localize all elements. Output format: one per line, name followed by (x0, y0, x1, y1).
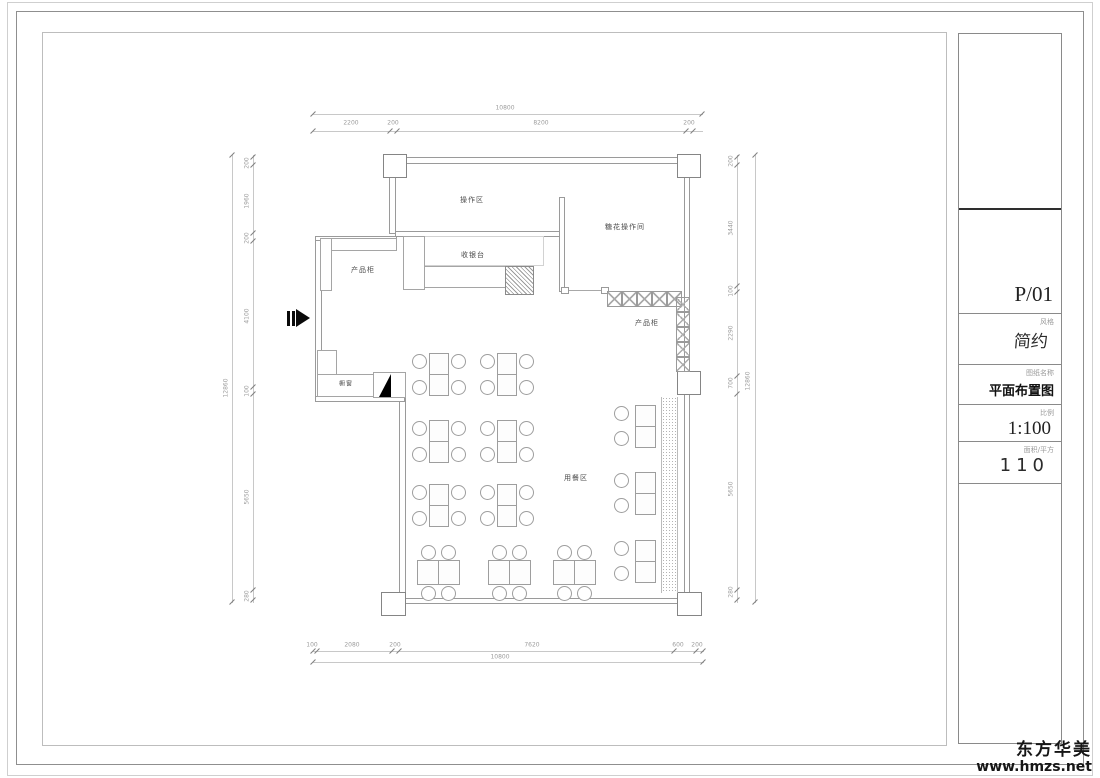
table-icon (574, 560, 596, 585)
table-icon (497, 374, 517, 396)
cabinet-x-cell (607, 291, 622, 307)
table-icon (553, 560, 575, 585)
table-icon (635, 405, 656, 427)
door-swing-triangle (379, 374, 391, 397)
drawing-sheet: 操作区 糖花操作间 收银台 产品柜 产品柜 橱窗 用餐区 10800 2200 … (0, 0, 1100, 778)
table-icon (429, 441, 449, 463)
chair-icon (451, 354, 466, 369)
entrance-arrow-icon (287, 309, 311, 327)
table-icon (497, 441, 517, 463)
dimension-text: 200 (683, 120, 694, 127)
wall (684, 394, 690, 594)
title-block-empty-cell (959, 34, 1061, 210)
room-label-cashier: 收银台 (461, 250, 485, 260)
dim-tick (700, 659, 706, 665)
chair-icon (441, 586, 456, 601)
table-icon (488, 560, 510, 585)
chair-icon (614, 541, 629, 556)
room-label-product-cabinet-left: 产品柜 (351, 265, 375, 275)
table-icon (429, 420, 449, 442)
chair-icon (480, 354, 495, 369)
dimension-text: 4100 (244, 308, 251, 323)
product-cabinet-x-strip (676, 297, 690, 372)
chair-icon (412, 354, 427, 369)
chair-icon (614, 498, 629, 513)
dimension-text: 200 (389, 642, 400, 649)
dimension-text: 5650 (728, 481, 735, 496)
dimension-line (313, 662, 704, 663)
dining-table-group-4seat (410, 420, 468, 464)
room-label-display-window: 橱窗 (339, 379, 353, 388)
cabinet-x-cell (676, 297, 690, 312)
dimension-line (313, 131, 703, 132)
chair-icon (519, 354, 534, 369)
dimension-text: 3440 (728, 220, 735, 235)
structural-column (677, 154, 701, 178)
room-label-sugar-flower-room: 糖花操作间 (605, 222, 645, 232)
chair-icon (451, 511, 466, 526)
chair-icon (451, 421, 466, 436)
dining-table-group-4seat (417, 545, 461, 601)
dining-table-group-4seat (410, 484, 468, 528)
table-icon (635, 426, 656, 448)
floor-plan: 操作区 糖花操作间 收银台 产品柜 产品柜 橱窗 用餐区 10800 2200 … (0, 0, 1100, 778)
table-icon (509, 560, 531, 585)
title-block-style-cell: 风格 简约 (959, 314, 1061, 365)
chair-icon (519, 447, 534, 462)
chair-icon (519, 380, 534, 395)
wall (559, 197, 565, 292)
chair-icon (480, 447, 495, 462)
dining-table-group-4seat (478, 353, 536, 397)
chair-icon (492, 586, 507, 601)
dimension-text: 7620 (524, 642, 539, 649)
style-label: 风格 (959, 314, 1061, 327)
chair-icon (519, 485, 534, 500)
watermark-brand: 东方华美 (976, 742, 1092, 760)
chair-icon (512, 586, 527, 601)
chair-icon (519, 511, 534, 526)
area-label: 面积/平方 (959, 442, 1061, 455)
title-block-area-cell: 面积/平方 110 (959, 442, 1061, 484)
dimension-line (737, 155, 738, 603)
style-value: 简约 (958, 327, 1062, 352)
table-icon (429, 374, 449, 396)
chair-icon (480, 485, 495, 500)
dining-table-group-2seat (614, 405, 656, 448)
table-icon (497, 505, 517, 527)
title-block: P/01 风格 简约 图纸名称 平面布置图 比例 1:100 面积/平方 110 (958, 33, 1062, 744)
dining-table-group-2seat (614, 540, 656, 583)
chair-icon (614, 431, 629, 446)
chair-icon (614, 406, 629, 421)
dimension-text: 1960 (244, 193, 251, 208)
watermark-url: www.hmzs.net (976, 760, 1092, 775)
room-label-operation-area: 操作区 (460, 195, 484, 205)
dimension-text: 200 (728, 155, 735, 166)
chair-icon (480, 421, 495, 436)
chair-icon (492, 545, 507, 560)
dining-table-group-4seat (478, 420, 536, 464)
cashier-counter (403, 236, 425, 290)
chair-icon (421, 586, 436, 601)
dimension-text: 200 (387, 120, 398, 127)
dimension-line (232, 155, 233, 603)
chair-icon (451, 485, 466, 500)
table-icon (635, 493, 656, 515)
chair-icon (557, 586, 572, 601)
wall (389, 176, 396, 234)
chair-icon (412, 447, 427, 462)
chair-icon (519, 421, 534, 436)
table-icon (635, 540, 656, 562)
chair-icon (441, 545, 456, 560)
dimension-line (313, 651, 704, 652)
room-label-dining-area: 用餐区 (564, 473, 588, 483)
structural-column (677, 592, 702, 616)
chair-icon (577, 586, 592, 601)
table-icon (429, 484, 449, 506)
dimension-text: 12860 (223, 378, 230, 397)
scale-value: 1:100 (959, 418, 1061, 440)
banquette-strip (661, 397, 678, 593)
chair-icon (512, 545, 527, 560)
structural-column (383, 154, 407, 178)
chair-icon (577, 545, 592, 560)
drawing-name-value: 平面布置图 (959, 378, 1061, 399)
dimension-text: 8200 (533, 120, 548, 127)
dining-table-group-4seat (553, 545, 597, 601)
table-icon (497, 420, 517, 442)
table-icon (417, 560, 439, 585)
dimension-text: 2200 (343, 120, 358, 127)
drawing-name-label: 图纸名称 (959, 365, 1061, 378)
watermark: 东方华美 www.hmzs.net (976, 742, 1092, 775)
cabinet-x-cell (676, 312, 690, 327)
room-label-product-cabinet-right: 产品柜 (635, 318, 659, 328)
dimension-text: 2080 (344, 642, 359, 649)
title-block-name-cell: 图纸名称 平面布置图 (959, 365, 1061, 405)
cabinet-x-cell (637, 291, 652, 307)
dimension-text: 600 (672, 642, 683, 649)
dimension-line (253, 155, 254, 603)
scale-label: 比例 (959, 405, 1061, 418)
chair-icon (412, 380, 427, 395)
title-block-empty-cell (959, 484, 1061, 743)
hatched-block (505, 266, 534, 295)
dining-table-group-4seat (478, 484, 536, 528)
wall (399, 397, 406, 594)
dimension-text: 700 (728, 377, 735, 388)
dimension-text: 5650 (244, 489, 251, 504)
table-icon (429, 505, 449, 527)
chair-icon (614, 473, 629, 488)
dimension-text: 100 (306, 642, 317, 649)
chair-icon (480, 511, 495, 526)
cabinet-x-cell (622, 291, 637, 307)
dimension-text: 2290 (728, 325, 735, 340)
area-value: 110 (959, 455, 1061, 476)
dining-table-group-4seat (488, 545, 532, 601)
structural-column (381, 592, 406, 616)
table-icon (635, 561, 656, 583)
chair-icon (412, 485, 427, 500)
product-cabinet-x-strip (607, 291, 682, 307)
door-jamb (561, 287, 569, 294)
dimension-text: 10800 (495, 105, 514, 112)
page-number: P/01 (1014, 282, 1053, 307)
product-cabinet-left (320, 238, 332, 291)
chair-icon (451, 447, 466, 462)
title-block-scale-cell: 比例 1:100 (959, 405, 1061, 442)
structural-column (677, 371, 701, 395)
cabinet-x-cell (676, 357, 690, 372)
dimension-text: 12860 (745, 371, 752, 390)
title-block-page-cell: P/01 (959, 210, 1061, 314)
cabinet-x-cell (676, 342, 690, 357)
dining-table-group-2seat (614, 472, 656, 515)
dimension-line (755, 155, 756, 603)
cabinet-x-cell (676, 327, 690, 342)
dimension-text: 10800 (490, 654, 509, 661)
dim-tick (699, 111, 705, 117)
dining-table-group-4seat (410, 353, 468, 397)
table-icon (635, 472, 656, 494)
cabinet-x-cell (652, 291, 667, 307)
dim-tick (700, 648, 706, 654)
chair-icon (412, 511, 427, 526)
chair-icon (480, 380, 495, 395)
dimension-line (313, 114, 703, 115)
chair-icon (451, 380, 466, 395)
table-icon (497, 484, 517, 506)
table-icon (497, 353, 517, 375)
table-icon (429, 353, 449, 375)
dim-tick (752, 599, 758, 605)
chair-icon (421, 545, 436, 560)
wall (406, 157, 679, 164)
chair-icon (614, 566, 629, 581)
cashier-counter (424, 266, 506, 288)
chair-icon (557, 545, 572, 560)
chair-icon (412, 421, 427, 436)
dim-tick (229, 599, 235, 605)
table-icon (438, 560, 460, 585)
